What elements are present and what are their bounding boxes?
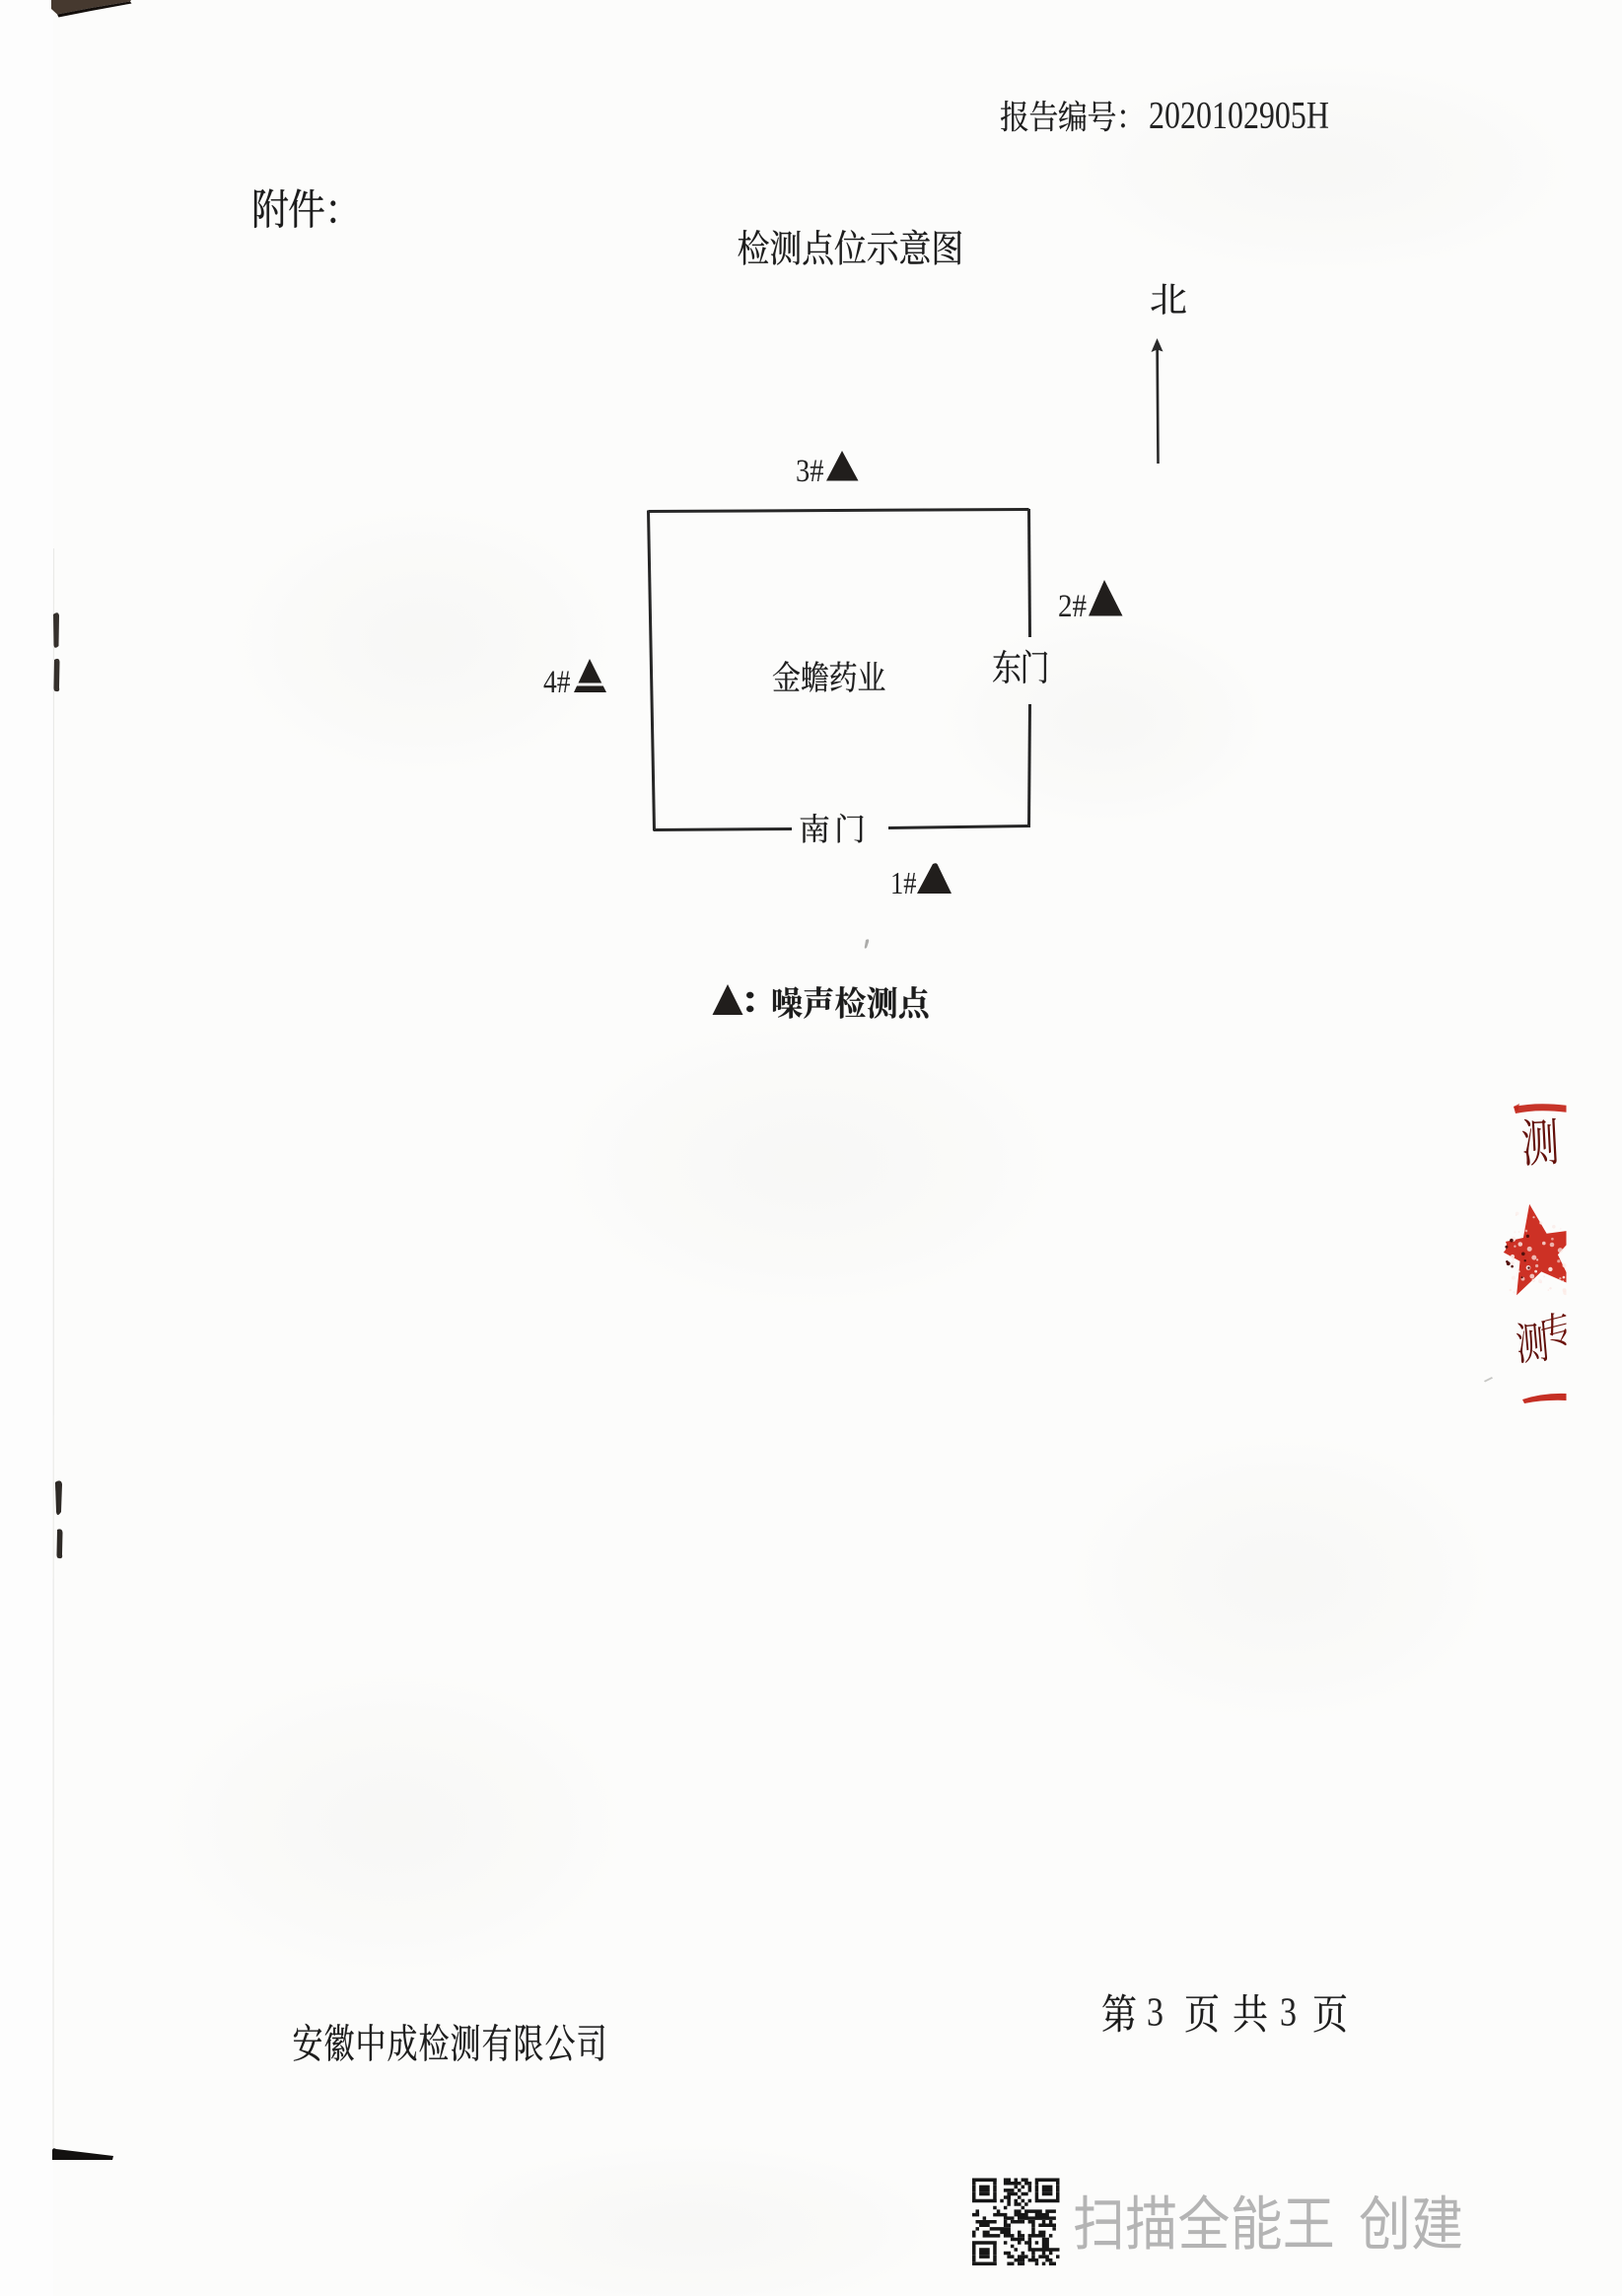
svg-text:3: 3: [1280, 1989, 1297, 2035]
svg-text:2#: 2#: [1058, 589, 1087, 624]
svg-text:3#: 3#: [796, 454, 824, 489]
svg-text:1#: 1#: [890, 865, 917, 900]
svg-text:2020102905H: 2020102905H: [1149, 95, 1329, 137]
svg-text:4#: 4#: [543, 665, 571, 700]
svg-text:3: 3: [1147, 1989, 1164, 2035]
